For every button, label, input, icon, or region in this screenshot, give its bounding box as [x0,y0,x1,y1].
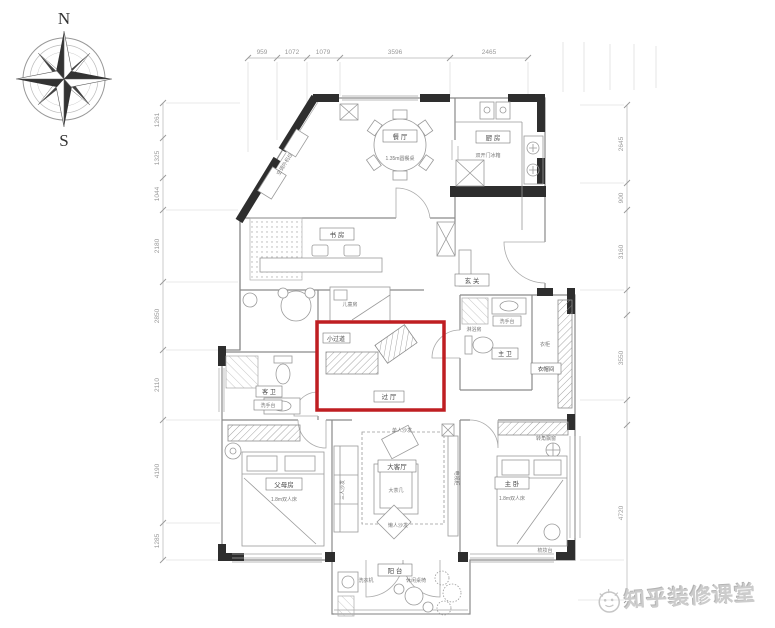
watermark-face-icon [593,584,625,616]
floor-plan-screenshot: N S [0,0,775,628]
dim-left-3: 1044 [154,186,161,201]
dim-left-2: 1325 [154,150,161,165]
plant-icon [225,443,241,459]
cloak-label: 衣帽间 [538,365,555,373]
shower-note: 淋浴房 [466,326,481,333]
washing-machine-icon [338,572,358,592]
guest-bath-label: 客 卫 [262,388,276,396]
bean-sofa-note: 懒人沙发 [388,522,408,529]
dim-left-4: 2180 [154,238,161,253]
tv-cabinet-note: 电视柜 [453,470,460,485]
ac-unit-bay: 空调外机位 [258,129,308,199]
cloakroom [558,300,572,408]
kids-label: 儿童房 [342,301,357,308]
dim-top-4: 3596 [388,49,403,56]
dim-left-7: 4190 [154,463,161,478]
corridor-wardrobe [326,325,417,374]
dim-left-1: 1261 [154,112,161,127]
entry-wall-opening [542,242,548,283]
tv-cabinet-icon [448,436,458,536]
small-corridor-label: 小过道 [327,335,345,343]
dim-left-5: 2850 [154,308,161,323]
balcony-label: 阳 台 [388,566,403,575]
leisure-note: 休闲桌椅 [406,577,426,584]
dim-right-2: 900 [618,192,625,203]
dim-right-5: 4720 [618,505,625,520]
guest-bath-sink-note: 洗手台 [260,402,275,409]
shower-icon [462,298,488,324]
dimension-left: 1261 1325 1044 2180 2850 2110 4190 1285 [154,100,166,563]
study-label: 书 房 [330,230,345,239]
kitchen-label: 厨 房 [486,133,501,142]
watermark: 知乎装修课堂 [593,563,775,628]
study-room [250,218,382,280]
sofa1-note: 单人沙发 [392,427,412,434]
master-label: 主 卧 [505,479,520,488]
vanity-note: 梳妆台 [537,547,552,554]
dining-table-icon [374,119,426,171]
toilet-icon [465,336,472,354]
study-desk-icon [260,258,382,272]
kitchen [455,102,543,230]
washer-note: 洗衣机 [358,577,373,584]
fridge-note: 双开门冰箱 [475,152,500,159]
wardrobe-icon [558,300,572,408]
dim-right-4: 3550 [618,350,625,365]
desk-chair-icon [312,245,328,256]
sofa3-note: 三人沙发 [339,480,346,500]
kitchen-sink-icon [480,102,494,119]
hall-label: 过 厅 [382,392,397,401]
parents-label: 父母房 [274,480,294,489]
wardrobe-icon [228,425,300,441]
living-label: 大客厅 [387,462,407,471]
dim-top-1: 959 [257,49,268,56]
dim-left-8: 1285 [154,533,161,548]
parents-bed-note: 1.8m双人床 [271,496,297,503]
dim-top-3: 1079 [316,49,331,56]
dim-top-5: 2465 [482,49,497,56]
dim-left-6: 2110 [154,378,161,392]
dim-right-3: 3160 [618,244,625,259]
watermark-text: 知乎装修课堂 [623,577,756,614]
bay-window-note: 转角飘窗 [536,435,556,442]
dining-table-note: 1.35m圆餐桌 [386,155,415,162]
dim-right-1: 2645 [618,136,625,151]
master-bath-label: 主 卫 [498,350,512,358]
master-bed-note: 1.8m双人床 [499,495,525,502]
washbasin-icon [492,298,526,314]
master-bath-sink-note: 洗手台 [499,318,514,325]
cloak-wardrobe-note: 衣柜 [540,341,550,348]
dim-top-2: 1072 [285,49,300,56]
sofa-icon [334,446,358,532]
vanity-stool-icon [544,524,560,540]
living-room [334,424,458,539]
dimension-top: 959 1072 1079 3596 2465 [245,49,531,61]
toilet-icon [274,356,292,363]
floor-plan-drawing: 空调外机位 [0,0,775,628]
dimension-right: 2645 900 3160 3550 4720 [618,102,630,603]
wardrobe-icon [498,422,568,435]
dining-label: 餐 厅 [393,132,408,141]
leisure-table-icon [405,587,423,605]
kids-area [243,287,390,323]
mop-sink-icon [338,596,354,616]
plant-icon [243,293,257,307]
plant-icon [435,571,449,585]
coffee-table-note: 大茶几 [388,487,403,494]
entry-label: 玄 关 [465,276,480,285]
shower-icon [226,356,258,388]
balcony [338,571,461,616]
